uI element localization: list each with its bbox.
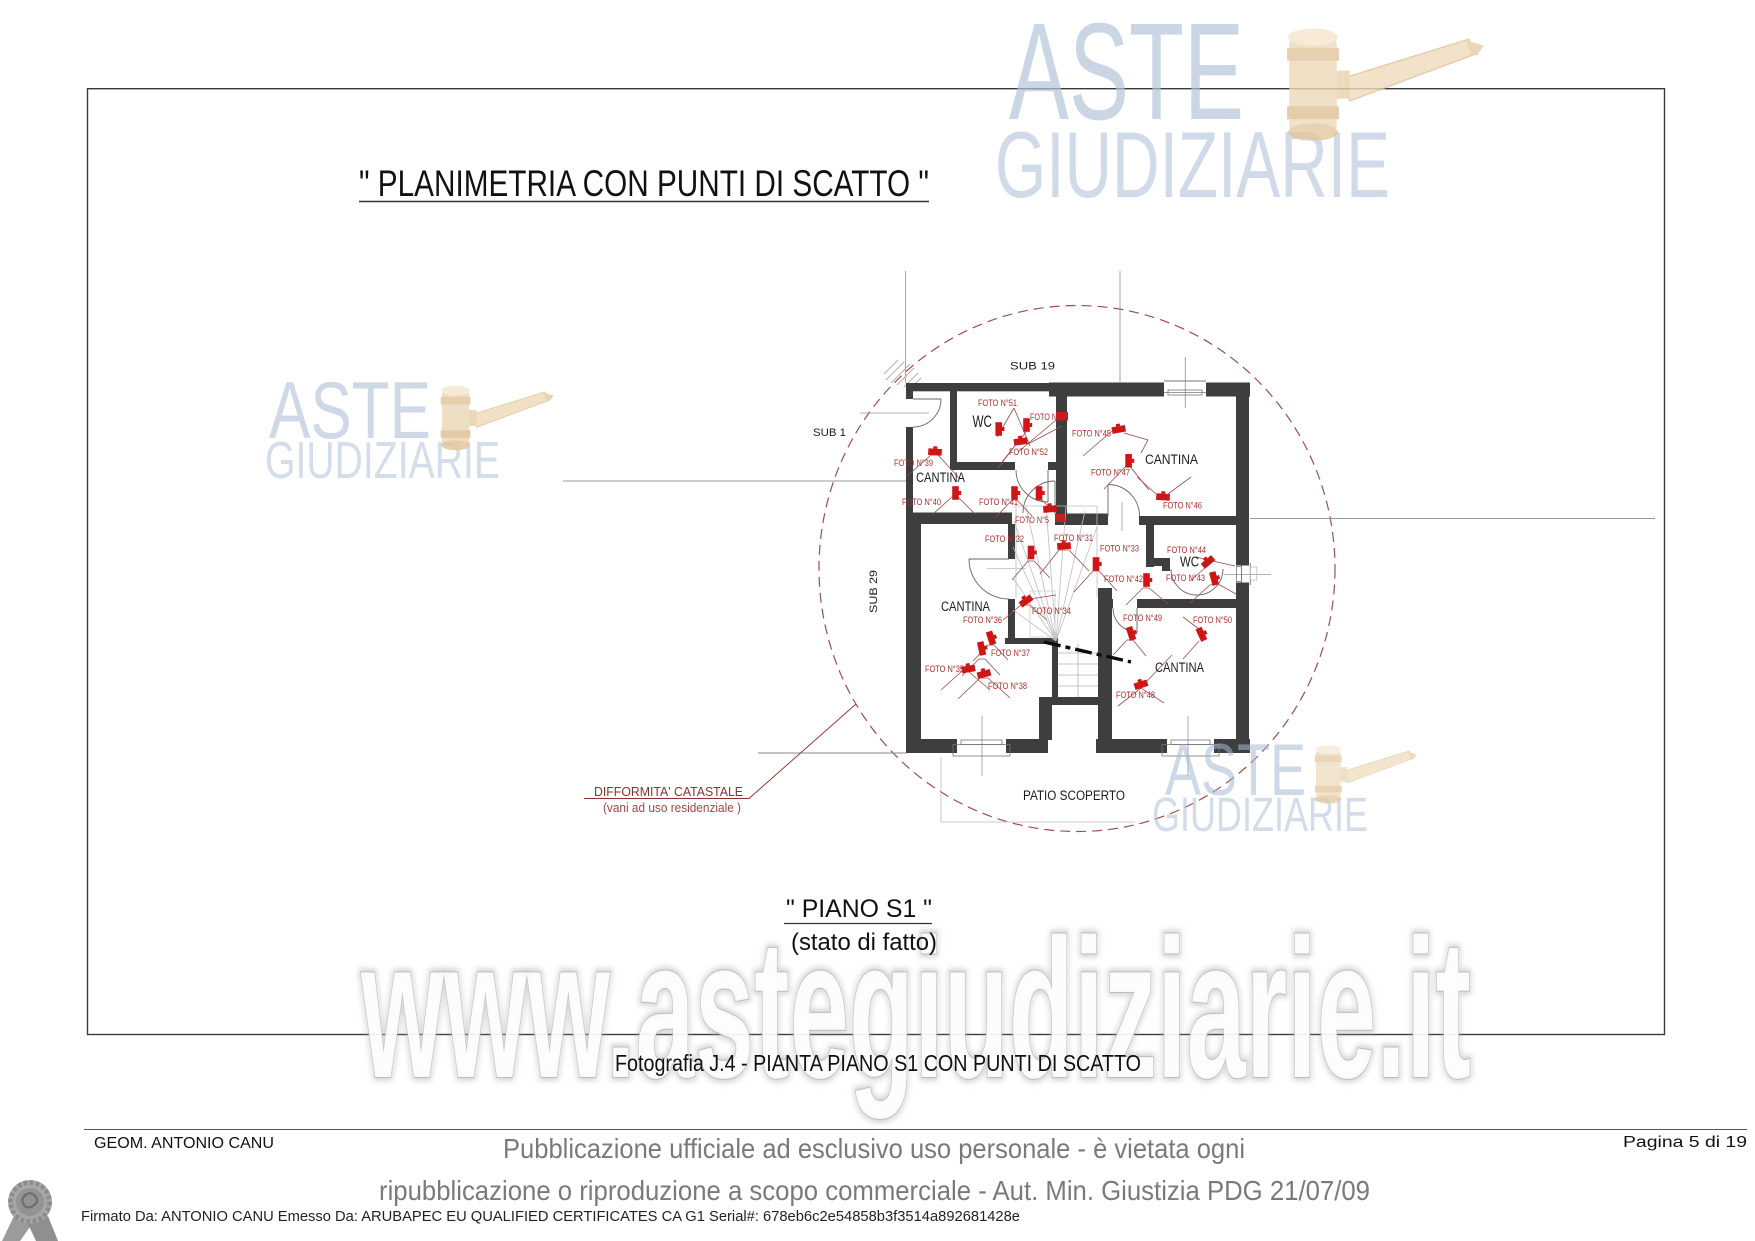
svg-text:WC: WC <box>973 413 993 431</box>
svg-text:Firmato Da: ANTONIO CANU Emess: Firmato Da: ANTONIO CANU Emesso Da: ARUB… <box>81 1209 1020 1225</box>
svg-text:FOTO N°43: FOTO N°43 <box>1166 573 1205 583</box>
svg-text:ripubblicazione o riproduzione: ripubblicazione o riproduzione a scopo c… <box>379 1175 1370 1206</box>
svg-text:FOTO N°32: FOTO N°32 <box>985 534 1024 544</box>
svg-text:(vani ad uso residenziale ): (vani ad uso residenziale ) <box>603 800 741 815</box>
svg-text:FOTO N°46: FOTO N°46 <box>1163 501 1202 511</box>
svg-text:WC: WC <box>1180 554 1199 571</box>
svg-text:FOTO N°47: FOTO N°47 <box>1091 468 1130 478</box>
svg-text:FOTO N°49: FOTO N°49 <box>1123 613 1162 623</box>
svg-text:FOTO N°33: FOTO N°33 <box>1100 544 1139 554</box>
svg-text:FOTO N°37: FOTO N°37 <box>991 648 1030 658</box>
svg-text:FOTO N°34: FOTO N°34 <box>1032 606 1071 616</box>
svg-text:Pagina 5 di 19: Pagina 5 di 19 <box>1623 1134 1747 1151</box>
svg-text:" PLANIMETRIA CON PUNTI DI SCA: " PLANIMETRIA CON PUNTI DI SCATTO " <box>359 163 929 204</box>
svg-text:FOTO N°52: FOTO N°52 <box>1009 447 1048 457</box>
svg-text:(stato di fatto): (stato di fatto) <box>791 929 937 956</box>
svg-text:FOTO N°39: FOTO N°39 <box>894 458 933 468</box>
svg-text:FOTO N°50: FOTO N°50 <box>1193 615 1232 625</box>
svg-text:CANTINA: CANTINA <box>1145 452 1198 467</box>
svg-text:FOTO N°48: FOTO N°48 <box>1116 690 1155 700</box>
svg-text:FOTO N°38: FOTO N°38 <box>988 681 1027 691</box>
svg-text:SUB 29: SUB 29 <box>868 570 880 613</box>
svg-text:CANTINA: CANTINA <box>916 470 965 485</box>
svg-text:FOTO N°45: FOTO N°45 <box>1072 429 1111 439</box>
svg-text:FOTO N°51: FOTO N°51 <box>978 398 1017 408</box>
svg-text:FOTO N°31: FOTO N°31 <box>1054 533 1093 543</box>
svg-text:FOTO N°5: FOTO N°5 <box>1015 515 1049 525</box>
svg-text:CANTINA: CANTINA <box>941 599 990 614</box>
svg-text:FOTO N°42: FOTO N°42 <box>1104 574 1143 584</box>
svg-text:CANTINA: CANTINA <box>1155 660 1204 675</box>
svg-text:Pubblicazione ufficiale ad esc: Pubblicazione ufficiale ad esclusivo uso… <box>503 1133 1245 1164</box>
svg-text:FOTO N°40: FOTO N°40 <box>902 497 941 507</box>
svg-text:GEOM. ANTONIO CANU: GEOM. ANTONIO CANU <box>94 1135 274 1152</box>
svg-text:" PIANO S1 ": " PIANO S1 " <box>786 895 932 923</box>
svg-text:Fotografia J.4 - PIANTA PIANO: Fotografia J.4 - PIANTA PIANO S1 CON PUN… <box>615 1050 1141 1076</box>
svg-text:FOTO N°36: FOTO N°36 <box>963 615 1002 625</box>
svg-text:DIFFORMITA' CATASTALE: DIFFORMITA' CATASTALE <box>594 784 743 799</box>
svg-text:SUB 1: SUB 1 <box>813 427 846 439</box>
svg-text:PATIO SCOPERTO: PATIO SCOPERTO <box>1023 788 1125 803</box>
svg-text:FOTO N°35: FOTO N°35 <box>925 664 964 674</box>
svg-text:SUB 19: SUB 19 <box>1010 361 1055 373</box>
svg-text:FOTO N°41: FOTO N°41 <box>979 497 1018 507</box>
